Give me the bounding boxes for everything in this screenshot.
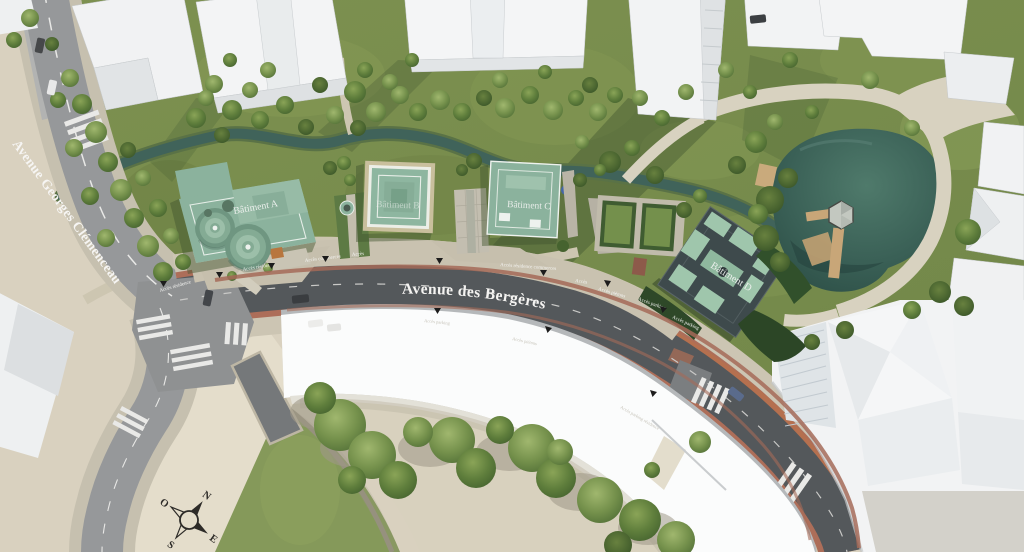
svg-text:Bâtiment B: Bâtiment B: [376, 200, 420, 212]
svg-text:Accès: Accès: [352, 252, 365, 258]
